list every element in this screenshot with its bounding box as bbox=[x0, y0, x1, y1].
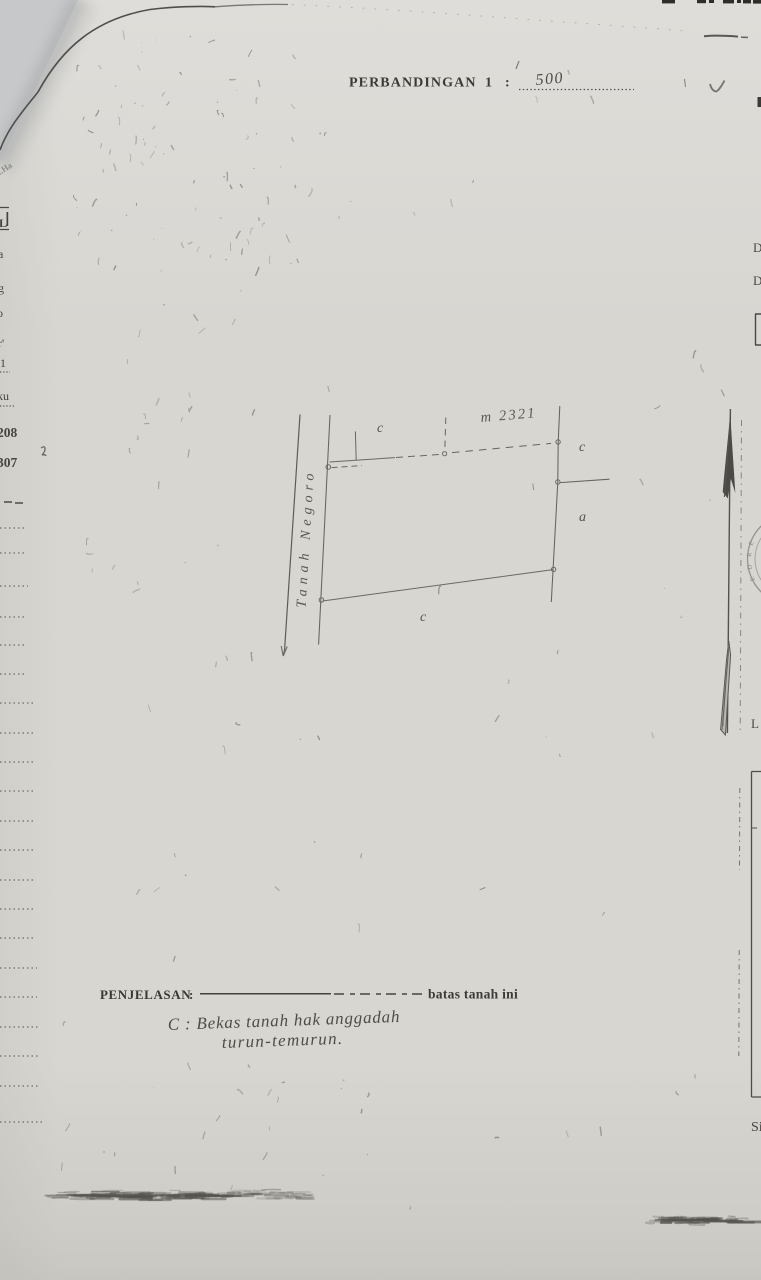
svg-text:r': r' bbox=[0, 336, 4, 350]
svg-text:208: 208 bbox=[0, 425, 18, 440]
svg-text:g: g bbox=[0, 281, 4, 295]
svg-text:a: a bbox=[579, 510, 586, 525]
svg-text:PERBANDINGAN: PERBANDINGAN bbox=[349, 76, 477, 91]
svg-text:c: c bbox=[420, 610, 427, 625]
svg-text:L: L bbox=[751, 716, 759, 731]
svg-text:o: o bbox=[0, 306, 3, 320]
svg-text::: : bbox=[505, 76, 510, 91]
svg-text:1: 1 bbox=[0, 356, 6, 370]
svg-text:L: L bbox=[0, 216, 7, 230]
svg-text:PENJELASAN: PENJELASAN bbox=[100, 987, 191, 1002]
svg-text:c: c bbox=[579, 440, 586, 455]
svg-text:c: c bbox=[377, 421, 384, 436]
svg-text:307: 307 bbox=[0, 455, 18, 470]
svg-text::: : bbox=[189, 987, 193, 1002]
svg-text:batas tanah ini: batas tanah ini bbox=[428, 987, 518, 1002]
svg-text:ku: ku bbox=[0, 389, 9, 403]
svg-text:D: D bbox=[753, 273, 761, 288]
svg-text:Si: Si bbox=[751, 1120, 761, 1135]
svg-text:500: 500 bbox=[535, 70, 565, 89]
svg-text:D: D bbox=[753, 240, 761, 255]
svg-text:1: 1 bbox=[485, 76, 492, 91]
